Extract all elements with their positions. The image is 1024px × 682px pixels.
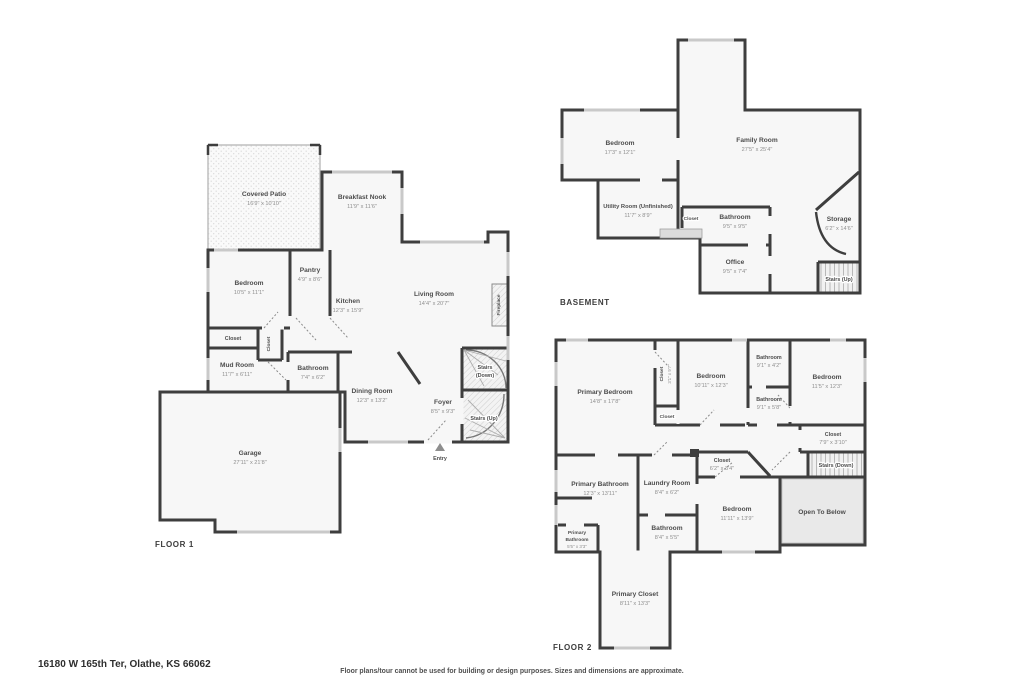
room-dims-garage: 27'11" x 21'8" bbox=[233, 460, 266, 466]
basement-closet-sill bbox=[660, 229, 702, 238]
room-dims-bathroom-f1: 7'4" x 6'2" bbox=[301, 375, 325, 381]
room-dims-dining-room: 12'3" x 13'2" bbox=[357, 398, 388, 404]
floor2-wall-stub bbox=[690, 449, 699, 457]
room-dims-kitchen: 12'3" x 15'9" bbox=[333, 308, 364, 314]
room-dims-foyer: 8'5" x 9'3" bbox=[431, 409, 455, 415]
room-dims-covered-patio: 16'9" x 10'10" bbox=[247, 201, 281, 207]
room-dims-bedroom-b: 17'3" x 12'1" bbox=[605, 150, 636, 156]
room-label-foyer: Foyer bbox=[434, 399, 452, 406]
disclaimer-text: Floor plans/tour cannot be used for buil… bbox=[0, 668, 1024, 675]
room-label-closet-tall: Closet bbox=[659, 366, 665, 381]
room-label-living-room: Living Room bbox=[414, 291, 454, 298]
room-label-office: Office bbox=[726, 259, 745, 266]
room-dims-bathroom-top: 9'1" x 4'2" bbox=[757, 363, 781, 369]
floor1-title: FLOOR 1 bbox=[155, 540, 194, 549]
room-label-fireplace: Fireplace bbox=[496, 294, 502, 315]
room-label-primary-bathroom-small-line2: Bathroom bbox=[565, 537, 589, 543]
room-dims-primary-closet: 8'11" x 13'3" bbox=[620, 601, 650, 607]
room-dims-closet-right: 7'9" x 3'10" bbox=[819, 440, 847, 446]
room-label-utility: Utility Room (Unfinished) bbox=[603, 204, 673, 210]
room-label-primary-bedroom: Primary Bedroom bbox=[577, 389, 632, 396]
room-label-bedroom-b: Bedroom bbox=[606, 140, 635, 147]
room-label-closet-right: Closet bbox=[825, 432, 842, 438]
room-dims-bedroom-f1: 10'5" x 11'1" bbox=[234, 290, 264, 296]
room-label-bathroom-b: Bathroom bbox=[719, 214, 750, 221]
room-dims-bathroom-bottom: 8'4" x 5'5" bbox=[655, 535, 679, 541]
room-dims-office: 9'5" x 7'4" bbox=[723, 269, 747, 275]
room-dims-living-room: 14'4" x 20'7" bbox=[419, 301, 450, 307]
room-label-bedroom-f1: Bedroom bbox=[235, 280, 264, 287]
room-label-storage: Storage bbox=[827, 216, 852, 223]
room-label-closet-a: Closet bbox=[225, 336, 242, 342]
room-label-laundry: Laundry Room bbox=[644, 480, 691, 487]
room-dims-breakfast-nook: 11'9" x 11'6" bbox=[347, 204, 377, 210]
open-to-below-label: Open To Below bbox=[798, 509, 846, 516]
room-label-bathroom-top: Bathroom bbox=[756, 355, 782, 361]
room-dims-bedroom-right: 11'5" x 12'3" bbox=[812, 384, 842, 390]
room-label-stairs-down-f1-line1: Stairs bbox=[478, 365, 493, 371]
room-dims-bathroom-b: 9'5" x 9'5" bbox=[723, 224, 747, 230]
floor1-plan: Covered Patio 16'9" x 10'10" Breakfast N… bbox=[155, 145, 509, 549]
room-label-breakfast-nook: Breakfast Nook bbox=[338, 194, 387, 201]
floor2-title: FLOOR 2 bbox=[553, 643, 592, 652]
room-dims-bathroom-mid: 9'1" x 5'8" bbox=[757, 405, 781, 411]
room-label-kitchen: Kitchen bbox=[336, 298, 360, 305]
room-label-family-room: Family Room bbox=[736, 137, 778, 144]
room-dims-mud-room: 11'7" x 6'11" bbox=[222, 372, 252, 378]
room-label-primary-bathroom: Primary Bathroom bbox=[571, 481, 629, 488]
room-dims-family-room: 27'5" x 25'4" bbox=[742, 147, 773, 153]
room-label-mud-room: Mud Room bbox=[220, 362, 254, 369]
room-label-bathroom-mid: Bathroom bbox=[756, 397, 782, 403]
room-label-stairs-down-f1-line2: (Down) bbox=[476, 373, 494, 379]
room-dims-primary-bathroom: 12'3" x 13'11" bbox=[583, 491, 616, 497]
room-label-stairs-up-f1: Stairs (Up) bbox=[470, 416, 497, 422]
room-label-bedroom-right: Bedroom bbox=[813, 374, 842, 381]
room-label-closet-mid: Closet bbox=[714, 458, 731, 464]
floor1-stairs-graphics bbox=[463, 349, 507, 441]
room-dims-primary-bathroom-small: 5'5" x 3'3" bbox=[567, 544, 587, 549]
floor2-plan: Primary Bedroom 14'8" x 17'8" Closet 3'1… bbox=[553, 340, 865, 652]
room-dims-utility: 11'7" x 8'9" bbox=[624, 213, 651, 219]
floor-plan-page: Covered Patio 16'9" x 10'10" Breakfast N… bbox=[0, 0, 1024, 682]
room-label-dining-room: Dining Room bbox=[351, 388, 392, 395]
room-label-primary-closet: Primary Closet bbox=[612, 591, 659, 598]
room-dims-storage: 6'2" x 14'6" bbox=[825, 226, 853, 232]
basement-footprint bbox=[562, 40, 860, 293]
entry-label: Entry bbox=[433, 456, 447, 462]
room-label-bedroom-bottom: Bedroom bbox=[723, 506, 752, 513]
entry-arrow-icon bbox=[435, 443, 445, 451]
room-label-garage: Garage bbox=[239, 450, 262, 457]
room-dims-pantry: 4'9" x 8'6" bbox=[298, 277, 322, 283]
room-dims-bedroom-bottom: 11'11" x 13'9" bbox=[721, 516, 754, 522]
room-label-stairs-up-b: Stairs (Up) bbox=[825, 277, 852, 283]
room-label-closet-small: Closet bbox=[660, 414, 675, 420]
room-label-closet-basement: Closet bbox=[684, 216, 699, 222]
room-dims-primary-bedroom: 14'8" x 17'8" bbox=[590, 399, 621, 405]
room-dims-closet-tall: 3'1" x 9'7" bbox=[667, 364, 672, 384]
room-label-bedroom-mid: Bedroom bbox=[697, 373, 726, 380]
room-label-closet-b: Closet bbox=[266, 336, 272, 351]
basement-plan: Bedroom 17'3" x 12'1" Family Room 27'5" … bbox=[560, 40, 860, 307]
room-dims-laundry: 8'4" x 6'2" bbox=[655, 490, 679, 496]
room-label-primary-bathroom-small-line1: Primary bbox=[568, 530, 586, 536]
room-label-bathroom-bottom: Bathroom bbox=[651, 525, 682, 532]
floor-plan-image: Covered Patio 16'9" x 10'10" Breakfast N… bbox=[0, 0, 1024, 682]
room-label-covered-patio: Covered Patio bbox=[242, 191, 286, 198]
room-label-bathroom-f1: Bathroom bbox=[297, 365, 328, 372]
basement-title: BASEMENT bbox=[560, 298, 610, 307]
room-label-pantry: Pantry bbox=[300, 267, 321, 274]
room-dims-closet-mid: 6'2" x 3'4" bbox=[710, 466, 734, 472]
room-dims-bedroom-mid: 10'11" x 12'3" bbox=[694, 383, 727, 389]
room-label-stairs-down-f2: Stairs (Down) bbox=[819, 463, 854, 469]
